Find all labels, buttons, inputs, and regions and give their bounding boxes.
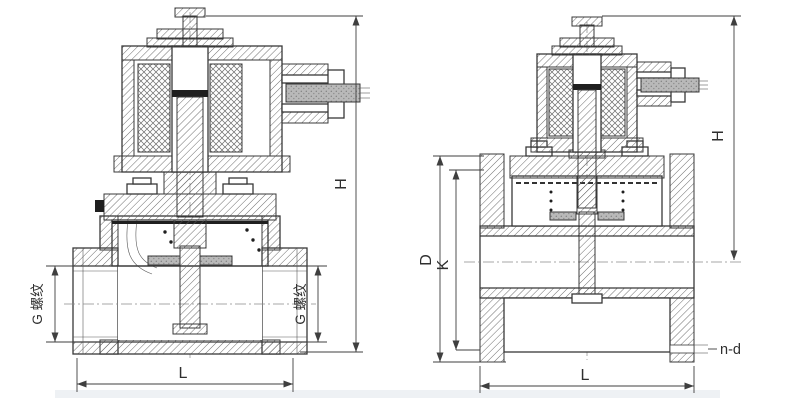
dim-l-right: L: [480, 366, 694, 393]
dim-label-port-left: G 螺纹: [30, 283, 45, 325]
valve-drawing: H L G 螺纹 G 螺纹: [0, 0, 800, 400]
left-valve-cable-gland: [282, 64, 370, 123]
dim-label-length-right: L: [581, 367, 590, 384]
dim-label-height-left: H: [333, 178, 350, 190]
dim-l-left: L: [77, 358, 293, 392]
dim-label-length-left: L: [179, 365, 188, 382]
dim-label-height-right: H: [710, 130, 727, 142]
bolt-hole: [670, 345, 694, 353]
dim-label-bolt-circle: K: [435, 259, 452, 270]
technical-drawing-canvas: H L G 螺纹 G 螺纹: [0, 0, 800, 400]
cable: [641, 78, 699, 92]
flange-top-right: [670, 154, 694, 228]
cable: [286, 84, 360, 102]
flange-top-left: [480, 154, 504, 228]
right-valve-cable-gland: [637, 62, 708, 106]
dim-label-flange-od: D: [418, 254, 435, 266]
footer-strip: [55, 390, 720, 398]
flange-foot-left: [480, 298, 504, 362]
dim-k-right: K: [435, 170, 484, 350]
dim-n-d-callout: n-d: [708, 342, 741, 358]
dim-label-bolt-holes: n-d: [720, 342, 741, 358]
dim-label-port-right: G 螺纹: [293, 283, 308, 325]
right-valve: D K H L: [418, 16, 742, 393]
left-valve: H L G 螺纹 G 螺纹: [30, 8, 370, 392]
